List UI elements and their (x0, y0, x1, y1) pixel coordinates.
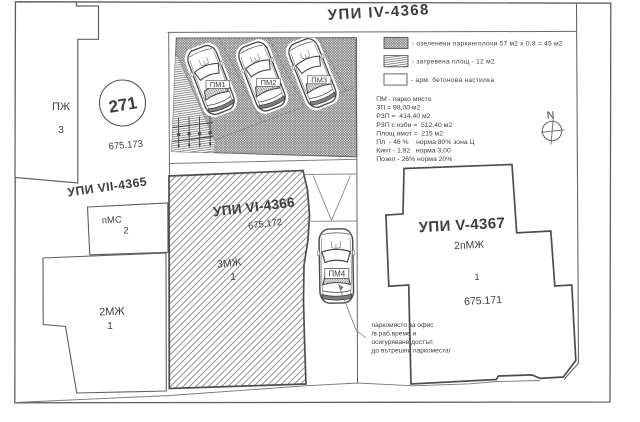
svg-text:2МЖ: 2МЖ (99, 306, 125, 319)
svg-text:ПМ4: ПМ4 (328, 270, 345, 279)
svg-text:2: 2 (123, 226, 128, 237)
svg-text:ПЖ: ПЖ (52, 101, 70, 113)
svg-text:паркомясто за офис: паркомясто за офис (372, 322, 435, 329)
svg-text:РЗП с изби = 512,40 м2: РЗП с изби = 512,40 м2 (376, 121, 452, 129)
svg-text:ПМ - парко място: ПМ - парко място (376, 96, 431, 103)
svg-text:ПМ2: ПМ2 (261, 78, 277, 87)
svg-text:1: 1 (107, 321, 113, 332)
svg-text:3: 3 (58, 125, 64, 136)
svg-text:- арм. бетонова настилка: - арм. бетонова настилка (411, 76, 494, 84)
svg-text:- озеленени паркингплочи 57 м2: - озеленени паркингплочи 57 м2 х 0,8 = 4… (412, 41, 563, 48)
svg-text:ЗП = 98,00 м2: ЗП = 98,00 м2 (376, 105, 420, 112)
svg-text:1: 1 (230, 272, 236, 283)
svg-text:Позел - 26% норма 20%: Позел - 26% норма 20% (376, 156, 452, 163)
svg-text:ПМ1: ПМ1 (210, 80, 226, 89)
svg-text:Площ имот = 215 м2: Площ имот = 215 м2 (376, 130, 443, 137)
svg-text:3МЖ: 3МЖ (216, 256, 242, 271)
svg-text:2пМЖ: 2пМЖ (454, 239, 485, 253)
svg-text:осигуряване достъп: осигуряване достъп (372, 339, 434, 346)
svg-text:/в раб.време и: /в раб.време и (372, 330, 417, 338)
svg-text:до вътрешни паркоместа/: до вътрешни паркоместа/ (372, 348, 451, 355)
svg-text:РЗП = 414,40 м2: РЗП = 414,40 м2 (376, 113, 430, 120)
svg-text:ПМ3: ПМ3 (311, 75, 327, 84)
svg-text:пМС: пМС (102, 214, 123, 226)
svg-text:- затревена площ - 12 м2: - затревена площ - 12 м2 (412, 59, 495, 66)
svg-text:675.171: 675.171 (464, 294, 503, 308)
svg-text:1: 1 (474, 272, 479, 282)
svg-text:Кинт - 1,92 норма 3,00: Кинт - 1,92 норма 3,00 (376, 148, 451, 155)
svg-text:Пл - 46 % норма 80% зона Ц: Пл - 46 % норма 80% зона Ц (376, 139, 474, 146)
